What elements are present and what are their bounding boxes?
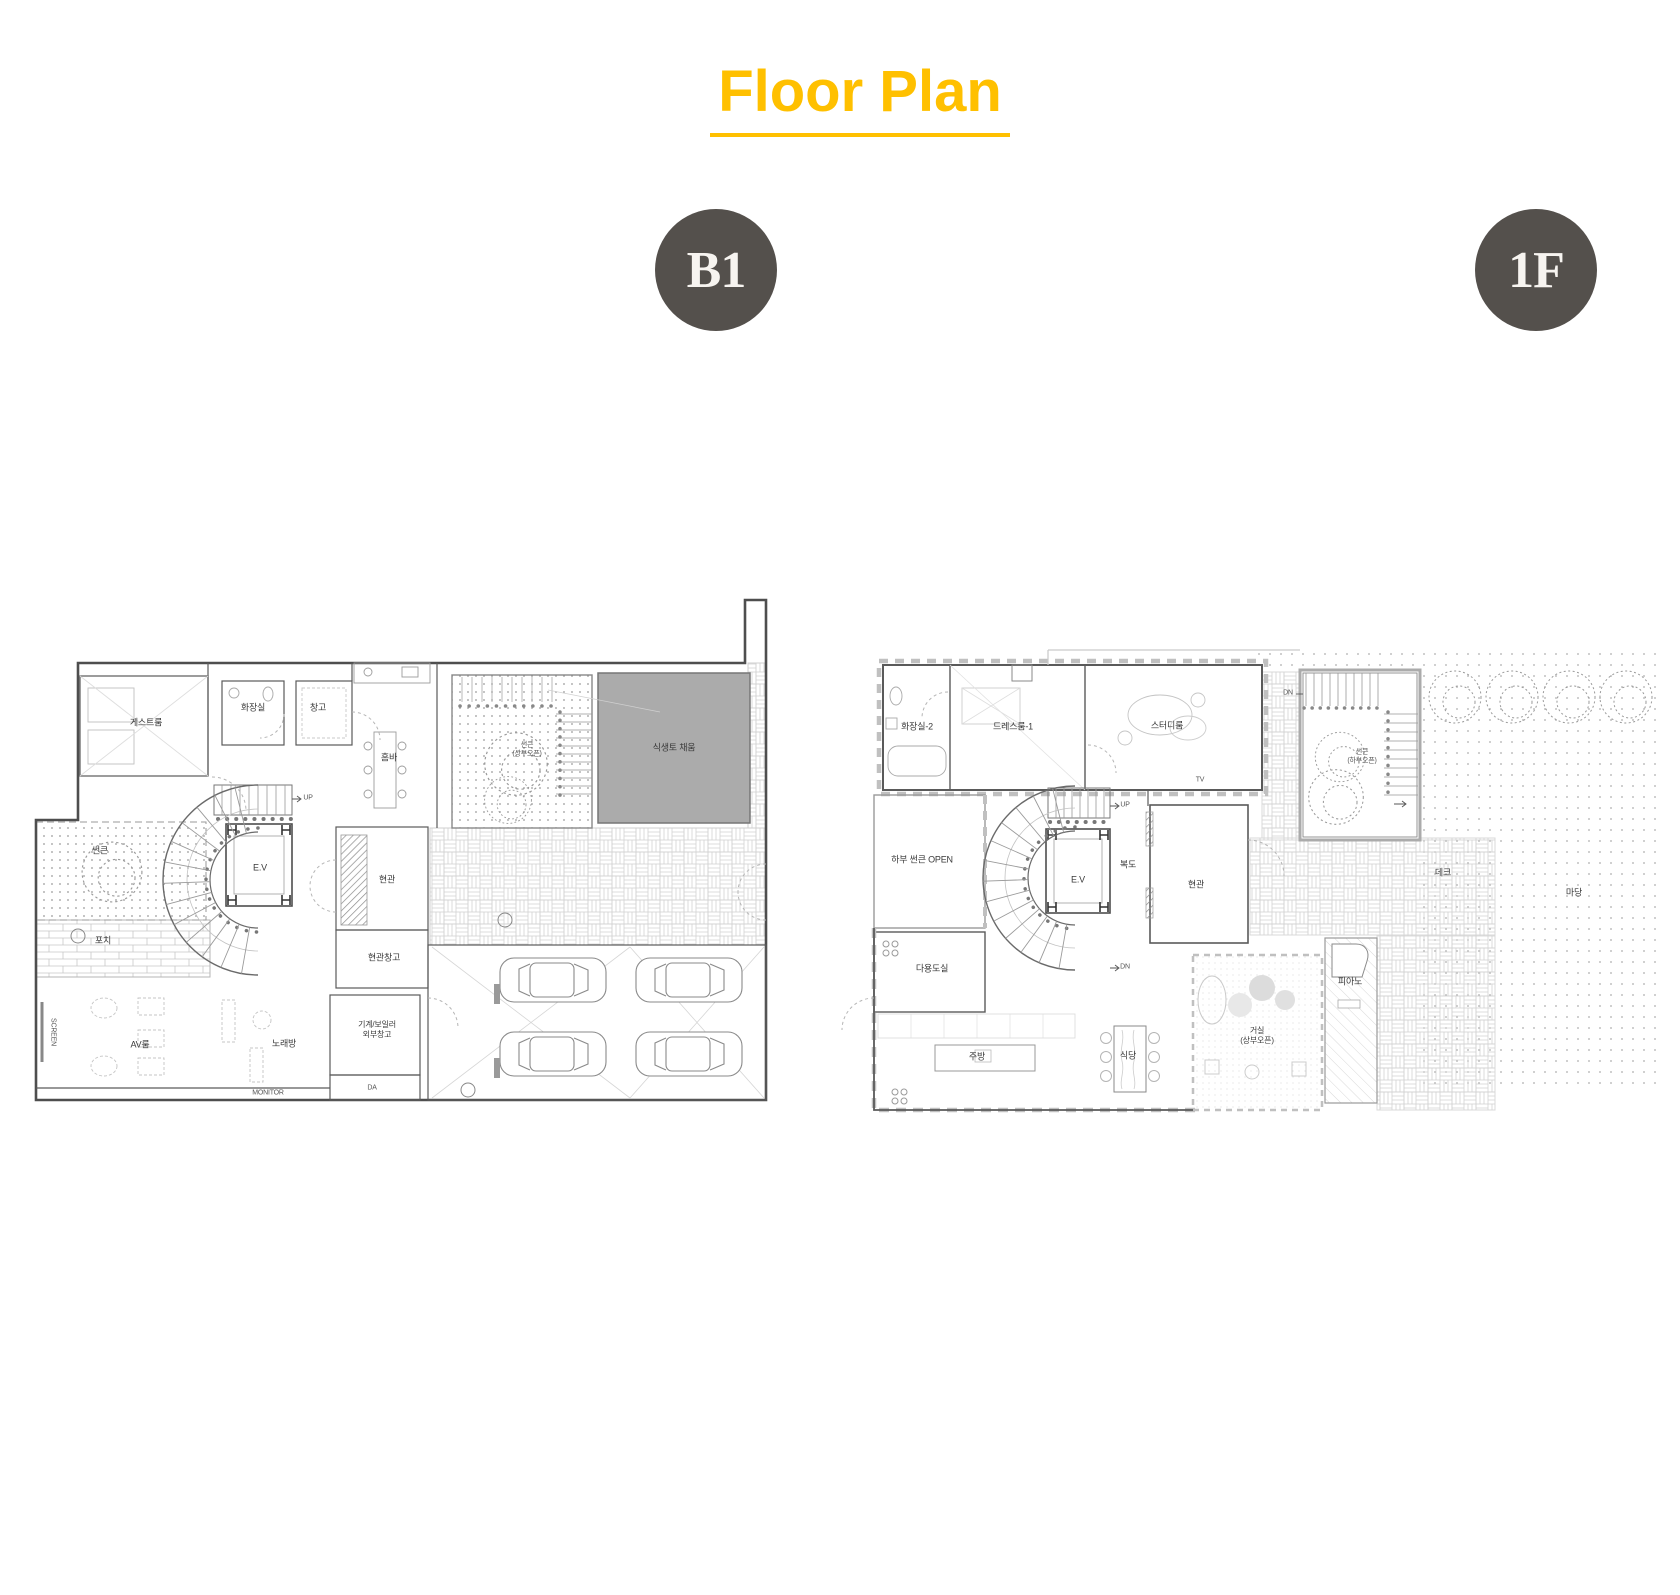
badge-1f-text: 1F — [1508, 241, 1564, 300]
f1-elevator — [1046, 829, 1110, 913]
room-label-dining: 식당 — [1120, 1050, 1136, 1061]
room-label-home-bar: 홈바 — [381, 752, 397, 763]
b1-entrance-mat — [341, 835, 367, 925]
b1-plan — [36, 600, 766, 1100]
b1-homebar — [354, 663, 430, 808]
f1-curved-stair — [983, 786, 1119, 971]
room-label-corridor: 복도 — [1120, 859, 1136, 870]
f1-bedroom-wing — [879, 661, 1266, 794]
room-label-av-room: AV룸 — [130, 1039, 149, 1050]
room-label-piano: 피아노 — [1338, 976, 1362, 987]
room-label-living: 거실 (상부오픈) — [1240, 1026, 1274, 1046]
label-f1-up: UP — [1120, 802, 1129, 811]
page: Floor Plan B1 1F — [0, 0, 1680, 1595]
room-label-dressroom1: 드레스룸-1 — [993, 721, 1033, 732]
room-label-f1-elevator: E.V — [1071, 874, 1085, 885]
room-label-entrance-storage: 현관창고 — [368, 952, 400, 963]
page-title: Floor Plan — [640, 58, 1080, 137]
floorplan-drawing — [25, 588, 1670, 1115]
room-label-yard: 마당 — [1566, 887, 1582, 898]
room-label-kitchen: 주방 — [969, 1051, 985, 1062]
badge-b1-text: B1 — [687, 241, 746, 300]
room-label-monitor: MONITOR — [252, 1090, 284, 1099]
f1-kitchen-dining — [874, 928, 1196, 1110]
badge-b1: B1 — [655, 209, 777, 331]
room-label-toilet2: 화장실-2 — [901, 721, 933, 732]
label-b1-up: UP — [303, 795, 312, 804]
label-f1-dn: DN — [1120, 964, 1130, 973]
room-label-f1-sunken: 썬큰 (하부오픈) — [1347, 748, 1376, 766]
room-label-b1-entrance: 현관 — [379, 874, 395, 885]
f1-piano-room — [1325, 938, 1377, 1103]
b1-av-furniture — [91, 998, 271, 1082]
page-title-text: Floor Plan — [710, 58, 1010, 137]
room-label-soil-fill: 식생토 채움 — [653, 742, 696, 753]
room-label-storage: 창고 — [310, 702, 326, 713]
label-dn-top: DN — [1283, 690, 1293, 699]
room-label-study: 스터디룸 — [1151, 720, 1183, 731]
label-tv: TV — [1196, 777, 1205, 786]
room-label-machine-room: 기계/보일러 외부창고 — [358, 1020, 396, 1040]
room-label-toilet: 화장실 — [241, 702, 265, 713]
room-label-deck: 데크 — [1435, 867, 1451, 878]
room-label-guest-room: 게스트룸 — [130, 717, 162, 728]
badge-1f: 1F — [1475, 209, 1597, 331]
room-label-karaoke: 노래방 — [272, 1038, 296, 1049]
f1-left-rooms — [874, 795, 985, 1012]
room-label-b1-elevator: E.V — [253, 862, 267, 873]
room-label-lower-sunken: 하부 썬큰 OPEN — [891, 854, 953, 865]
room-label-sunken-top: 썬큰 (상부오픈) — [512, 741, 541, 759]
room-label-screen: SCREEN — [48, 1018, 57, 1046]
room-label-porch: 포치 — [95, 935, 111, 946]
room-label-utility: 다용도실 — [916, 963, 948, 974]
room-label-f1-entrance: 현관 — [1188, 879, 1204, 890]
room-label-sunken-left: 썬큰 — [92, 845, 108, 856]
room-label-da: DA — [367, 1085, 376, 1094]
